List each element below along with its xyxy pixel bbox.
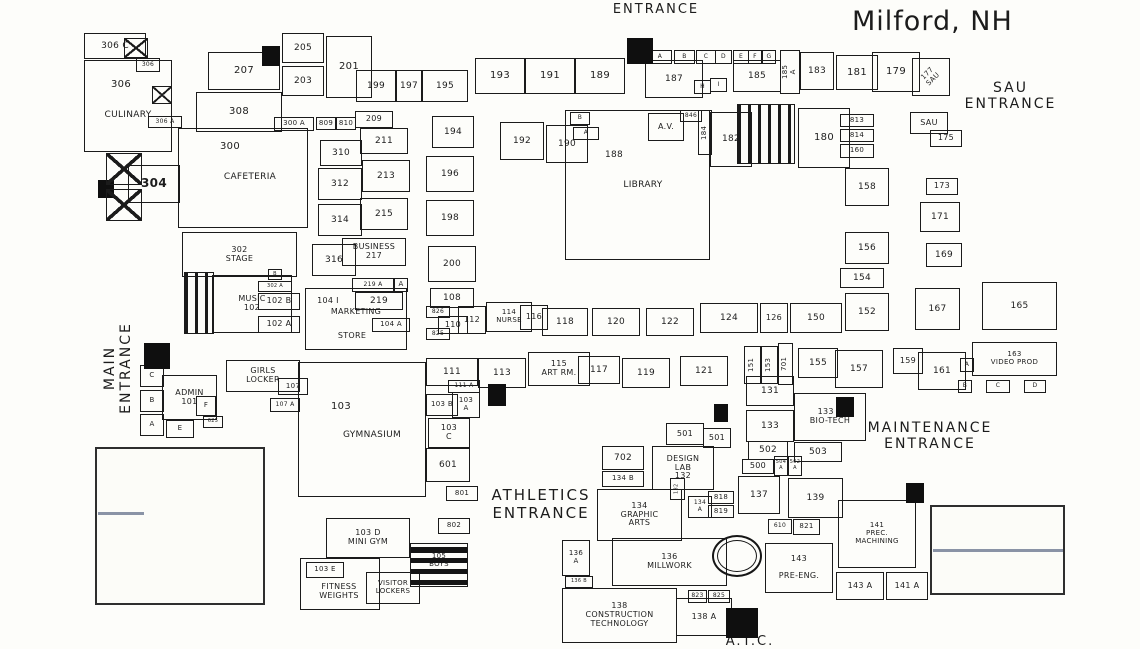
room-label: 826 (432, 309, 444, 316)
room-label: 185 (748, 71, 766, 81)
room-label: 141 A (895, 582, 920, 591)
room-box: 154 (840, 268, 884, 288)
room-box: 112 (458, 306, 486, 334)
room-label: 157 (850, 364, 868, 374)
room-label: 121 (695, 366, 713, 376)
room-label: 701 (782, 357, 790, 371)
room-label: 103 D MINI GYM (348, 529, 388, 547)
room-box: 169 (926, 243, 962, 267)
room-box: 102 B (258, 293, 300, 310)
room-box: 132 (670, 478, 685, 500)
room-box: A (140, 414, 164, 436)
room-label: 502 (759, 445, 777, 455)
room-label: 502 A (790, 460, 800, 471)
room-label: 119 (637, 368, 655, 378)
room-label: 825 (713, 593, 725, 600)
room-label: 185 A (782, 63, 798, 81)
room-label: BUSINESS 217 (353, 243, 395, 261)
elevator-icon (124, 38, 148, 58)
room-box: E (166, 420, 194, 438)
room-box: 215 (360, 198, 408, 230)
room-label: 211 (375, 136, 393, 146)
room-label: 155 (809, 358, 827, 368)
room-label: 207 (234, 65, 254, 76)
room-box: 159 (893, 348, 923, 374)
room-box: 165 (982, 282, 1057, 330)
room-box: 197 (396, 70, 422, 102)
room-box: 134 B (602, 471, 644, 487)
room-box: 171 (920, 202, 960, 232)
room-label: 194 (444, 127, 462, 137)
room-label: 131 (761, 386, 779, 396)
room-box: 177 SAU (912, 58, 950, 96)
room-box: 819 (708, 505, 734, 518)
room-label: 504 A (776, 460, 786, 471)
room-box: BUSINESS 217 (342, 238, 406, 266)
room-label: E (178, 425, 183, 433)
floor-plan-map: Milford, NH ENTRANCE SAU ENTRANCE MAIN E… (0, 0, 1140, 649)
room-box: 163 VIDEO PROD (972, 342, 1057, 376)
room-label: 802 (447, 522, 461, 530)
room-box: I (710, 78, 727, 92)
map-text: 188 (592, 148, 636, 162)
room-box: 300 A (274, 117, 314, 131)
room-label: 209 (366, 115, 382, 124)
room-label: 143 PRE-ENG. (779, 555, 820, 582)
elevator-icon (106, 189, 142, 221)
room-box: 185 A (780, 50, 800, 94)
room-label: 143 A (848, 582, 873, 591)
room-box: VISITOR LOCKERS (366, 572, 420, 604)
room-label: 165 (1010, 301, 1028, 311)
room-box: 825 (708, 590, 730, 603)
room-label: 302 STAGE (226, 246, 253, 264)
room-label: 111 A (455, 383, 474, 390)
room-label: 120 (607, 317, 625, 327)
room-label: GYMNASIUM (343, 430, 401, 440)
room-box: 501 (666, 423, 704, 445)
room-label: 117 (590, 365, 608, 375)
room-box: H (694, 80, 711, 94)
room-box: 103 A (452, 392, 480, 418)
room-label: B (273, 272, 277, 278)
room-box: 193 (475, 58, 525, 94)
room-label: 156 (858, 243, 876, 253)
room-label: 312 (331, 179, 349, 189)
room-label: 141 PREC. MACHINING (855, 522, 899, 545)
room-label: 103 B (431, 401, 453, 409)
room-box: 167 (915, 288, 960, 330)
room-label: 107 A (276, 402, 295, 409)
room-box: 213 (362, 160, 410, 192)
room-box: 143 A (836, 572, 884, 600)
room-box: 610 (768, 519, 792, 534)
room-label: B (578, 115, 582, 122)
room-label: 198 (441, 213, 459, 223)
room-label: 314 (331, 215, 349, 225)
kiln-circle-icon (712, 535, 762, 577)
room-box: 211 (360, 128, 408, 154)
room-label: 161 (933, 366, 951, 376)
room-label: 306 (111, 79, 131, 90)
room-label: 103 A (459, 397, 473, 413)
room-label: 819 (714, 508, 728, 516)
room-box: 121 (680, 356, 728, 386)
room-box: 124 (700, 303, 758, 333)
room-label: B (682, 54, 686, 61)
room-label: 810 (339, 120, 353, 128)
room-label: C (704, 54, 709, 61)
room-label: 191 (540, 70, 560, 81)
room-label: 115 ART RM. (542, 360, 577, 378)
room-box: 185 (733, 60, 781, 92)
room-label: 310 (332, 148, 350, 158)
room-box: 180 (798, 108, 850, 168)
room-box: 306 A (148, 116, 182, 128)
entrance-marker (488, 384, 506, 406)
room-label: 136 B (571, 579, 587, 585)
room-box: 103 C (428, 418, 470, 448)
athletics-entrance-label: ATHLETICS ENTRANCE (466, 486, 616, 522)
room-label: 126 (766, 314, 782, 323)
elevator-icon (152, 86, 172, 104)
sau-entrance-label: SAU ENTRANCE (948, 80, 1073, 112)
entrance-marker (144, 343, 170, 369)
room-label: 163 VIDEO PROD (991, 351, 1038, 367)
room-label: 136 A (569, 550, 583, 566)
room-box: B (140, 390, 164, 412)
room-label: 103 (331, 401, 351, 412)
room-box: 107 A (270, 398, 300, 412)
room-label: 302 A (267, 284, 283, 290)
room-label: VISITOR LOCKERS (376, 580, 410, 596)
room-label: 823 (691, 593, 703, 600)
room-label: 103 E (314, 566, 336, 574)
room-label: D (1033, 383, 1038, 390)
room-label: 102 A (267, 320, 292, 329)
room-box: 199 (356, 70, 396, 102)
room-box: 302 A (258, 281, 292, 292)
room-label: 154 (853, 273, 871, 283)
room-label: 111 (443, 367, 461, 377)
room-label: 809 (319, 120, 333, 128)
room-label: 104 I (317, 297, 339, 306)
room-box: 138 A (676, 598, 732, 636)
room-box: C (696, 50, 716, 64)
room-box: 122 (646, 308, 694, 336)
maintenance-entrance-label: MAINTENANCE ENTRANCE (850, 420, 1010, 452)
room-label: 102 B (267, 297, 292, 306)
room-box: 156 (845, 232, 889, 264)
room-box: B (268, 269, 282, 280)
room-box: 141 PREC. MACHINING (838, 500, 916, 568)
room-label: LIBRARY (623, 180, 662, 190)
room-box: 195 (422, 70, 468, 102)
room-label: 503 (809, 447, 827, 457)
room-label: 151 (749, 358, 757, 372)
room-box: 133 (746, 410, 794, 442)
room-box: 314 (318, 204, 362, 236)
room-label: 190 (558, 139, 576, 149)
room-label: 132 (675, 484, 681, 494)
entrance-marker (906, 483, 924, 503)
room-label: 195 (436, 81, 454, 91)
room-box: 500 (742, 459, 774, 474)
locker-bank-icon (411, 569, 467, 574)
map-text: GYMNASIUM (322, 428, 422, 442)
room-label: 825 (432, 331, 444, 338)
room-box: 108 (430, 288, 474, 308)
stairs-icon (737, 104, 795, 164)
room-box: 118 (542, 308, 588, 336)
room-label: 197 (400, 81, 418, 91)
room-box: 198 (426, 200, 474, 236)
room-label: 124 (720, 313, 738, 323)
room-box: 801 (446, 486, 478, 501)
room-box: 137 (738, 476, 780, 514)
room-box: 175 (930, 130, 962, 147)
room-label: 134 A (694, 500, 706, 513)
room-box: 158 (845, 168, 889, 206)
room-box: 209 (355, 111, 393, 128)
room-label: STORE (338, 332, 366, 341)
room-label: 189 (590, 70, 610, 81)
room-box: 625 (203, 416, 223, 428)
room-box: 306 (136, 58, 160, 72)
room-label: 818 (714, 494, 728, 502)
room-box: 136 B (565, 576, 593, 588)
room-label: 108 (443, 293, 461, 303)
room-box: 139 (788, 478, 843, 518)
room-label: 192 (513, 136, 531, 146)
room-label: CULINARY (104, 110, 151, 120)
room-label: 171 (931, 212, 949, 222)
room-box: 504 A (774, 456, 788, 476)
room-label: 821 (799, 523, 813, 531)
room-box: 310 (320, 140, 362, 166)
room-box: C (986, 380, 1010, 393)
room-label: A (149, 421, 154, 429)
map-text: 103 (318, 400, 364, 414)
elevator-icon (106, 153, 142, 185)
room-label: 702 (614, 453, 632, 463)
room-box: 190 (546, 125, 588, 163)
room-label: 500 (750, 462, 766, 471)
room-box: 103 D MINI GYM (326, 518, 410, 558)
room-label: D (721, 54, 726, 61)
room-label: 813 (850, 117, 864, 125)
room-box: 152 (845, 293, 889, 331)
room-box: 183 (800, 52, 834, 90)
map-text: FITNESS WEIGHTS (302, 578, 376, 606)
room-label: A (658, 54, 662, 61)
dash-line (933, 549, 1063, 552)
room-label: 158 (858, 182, 876, 192)
room-label: 501 (709, 434, 725, 443)
room-label: 306 (142, 62, 154, 69)
room-box: 150 (790, 303, 842, 333)
room-box: 131 (746, 376, 794, 406)
room-box: 161 (918, 352, 966, 390)
room-label: 193 (490, 70, 510, 81)
room-label: 152 (858, 307, 876, 317)
room-label: 138 CONSTRUCTION TECHNOLOGY (586, 602, 654, 629)
map-text: CAFETERIA (205, 170, 295, 184)
room-label: 180 (814, 132, 834, 143)
room-label: 203 (294, 76, 312, 86)
room-label: 213 (377, 171, 395, 181)
room-label: 118 (556, 317, 574, 327)
room-box: 102 A (258, 316, 300, 333)
room-box: 126 (760, 303, 788, 333)
room-label: 187 (665, 74, 683, 84)
room-box: B (674, 50, 695, 64)
room-label: 116 (526, 313, 542, 322)
room-label: 134 B (612, 475, 634, 483)
room-box: 120 (592, 308, 640, 336)
room-label: 138 A (692, 613, 717, 622)
room-box: 823 (688, 590, 707, 603)
map-text: 306 (96, 78, 146, 92)
room-box: 189 (575, 58, 625, 94)
entrance-marker (726, 608, 758, 638)
room-box: 821 (793, 519, 820, 535)
room-label: 150 (807, 313, 825, 323)
room-label: F (204, 402, 208, 410)
room-label: 160 (850, 147, 864, 155)
room-box: 825 (426, 328, 450, 340)
map-text: 300 (205, 140, 255, 154)
room-label: 215 (375, 209, 393, 219)
room-label: 169 (935, 250, 953, 260)
room-box: 133 A BIO-TECH (794, 393, 866, 441)
room-label: 300 A (283, 120, 305, 128)
room-label: 610 (774, 523, 786, 530)
room-box: D (715, 50, 732, 64)
room-label: 104 A (380, 321, 402, 329)
room-box: 501 (703, 428, 731, 448)
room-label: 196 (441, 169, 459, 179)
room-box: 136 MILLWORK (612, 538, 727, 586)
room-box: 196 (426, 156, 474, 192)
room-box: 809 (316, 117, 336, 130)
room-label: 199 (367, 81, 385, 91)
entrance-marker (714, 404, 728, 422)
room-label: 136 MILLWORK (647, 553, 692, 571)
room-label: 137 (750, 490, 768, 500)
room-label: 133 (761, 421, 779, 431)
room-label: 177 SAU (920, 66, 942, 88)
room-box: 173 (926, 178, 958, 195)
entrance-marker (836, 397, 854, 417)
room-box: 119 (622, 358, 670, 388)
entrance-label-top: ENTRANCE (596, 2, 716, 17)
room-label: C (996, 383, 1001, 390)
dash-line (98, 512, 144, 515)
room-label: 308 (229, 106, 249, 117)
room-box: 138 CONSTRUCTION TECHNOLOGY (562, 588, 677, 643)
room-box: 157 (835, 350, 883, 388)
room-box: 191 (525, 58, 575, 94)
room-box: 205 (282, 33, 324, 63)
room-box: 143 PRE-ENG. (765, 543, 833, 593)
map-title: Milford, NH (852, 6, 1092, 37)
room-box: 117 (578, 356, 620, 384)
room-box: 141 A (886, 572, 928, 600)
room-label: 183 (808, 66, 826, 76)
room-label: 122 (661, 317, 679, 327)
room-box: 203 (282, 66, 324, 96)
room-label: 205 (294, 43, 312, 53)
room-box: F (196, 396, 216, 416)
room-label: 175 (938, 134, 954, 143)
map-text: LIBRARY (608, 178, 678, 192)
room-label: 181 (847, 67, 867, 78)
room-label: B (149, 397, 154, 405)
locker-bank-icon (411, 547, 467, 553)
room-label: 167 (928, 304, 946, 314)
room-label: 112 (464, 316, 480, 325)
room-label: 801 (455, 490, 469, 498)
room-box: B (570, 112, 590, 125)
room-label: 625 (208, 419, 218, 425)
room-label: FITNESS WEIGHTS (319, 583, 359, 601)
room-label: 300 (220, 141, 240, 152)
room-label: 173 (934, 182, 950, 191)
locker-bank-icon (411, 580, 467, 585)
entrance-marker (262, 46, 280, 66)
room-label: 159 (900, 357, 916, 366)
room-label: I (717, 82, 719, 89)
room-box: 810 (336, 117, 356, 130)
room-label: 306 A (156, 119, 175, 126)
room-box: 308 (196, 92, 282, 132)
room-label: CAFETERIA (224, 172, 276, 182)
room-label: 814 (850, 132, 864, 140)
room-box: 702 (602, 446, 644, 470)
room-box: 502 A (788, 456, 802, 476)
room-label: MARKETING (331, 308, 381, 317)
room-box: D (1024, 380, 1046, 393)
room-box: 802 (438, 518, 470, 534)
room-label: 134 GRAPHIC ARTS (621, 502, 659, 529)
room-box: 194 (432, 116, 474, 148)
main-entrance-label: MAIN ENTRANCE (102, 278, 134, 458)
room-label: 107 (286, 383, 300, 391)
room-label: SAU (920, 119, 937, 128)
room-label: 113 (493, 368, 511, 378)
stairs-icon (184, 272, 214, 334)
room-label: 153 (766, 358, 774, 372)
room-box: 104 A (372, 318, 410, 332)
room-label: 316 (325, 255, 343, 265)
blank-area (95, 447, 265, 605)
room-label: 103 C (441, 424, 457, 442)
room-label: 114 NURSE (496, 309, 522, 325)
room-label: 139 (806, 493, 824, 503)
room-box (84, 60, 172, 152)
entrance-marker (627, 38, 653, 64)
map-text: MARKETING (312, 306, 400, 318)
room-box: 601 (426, 448, 470, 482)
room-label: 501 (677, 430, 693, 439)
room-box: 200 (428, 246, 476, 282)
room-label: 304 (141, 177, 167, 190)
room-label: 601 (439, 460, 457, 470)
room-label: 179 (886, 66, 906, 77)
locker-bank-icon (411, 558, 467, 563)
room-label: C (149, 372, 154, 380)
